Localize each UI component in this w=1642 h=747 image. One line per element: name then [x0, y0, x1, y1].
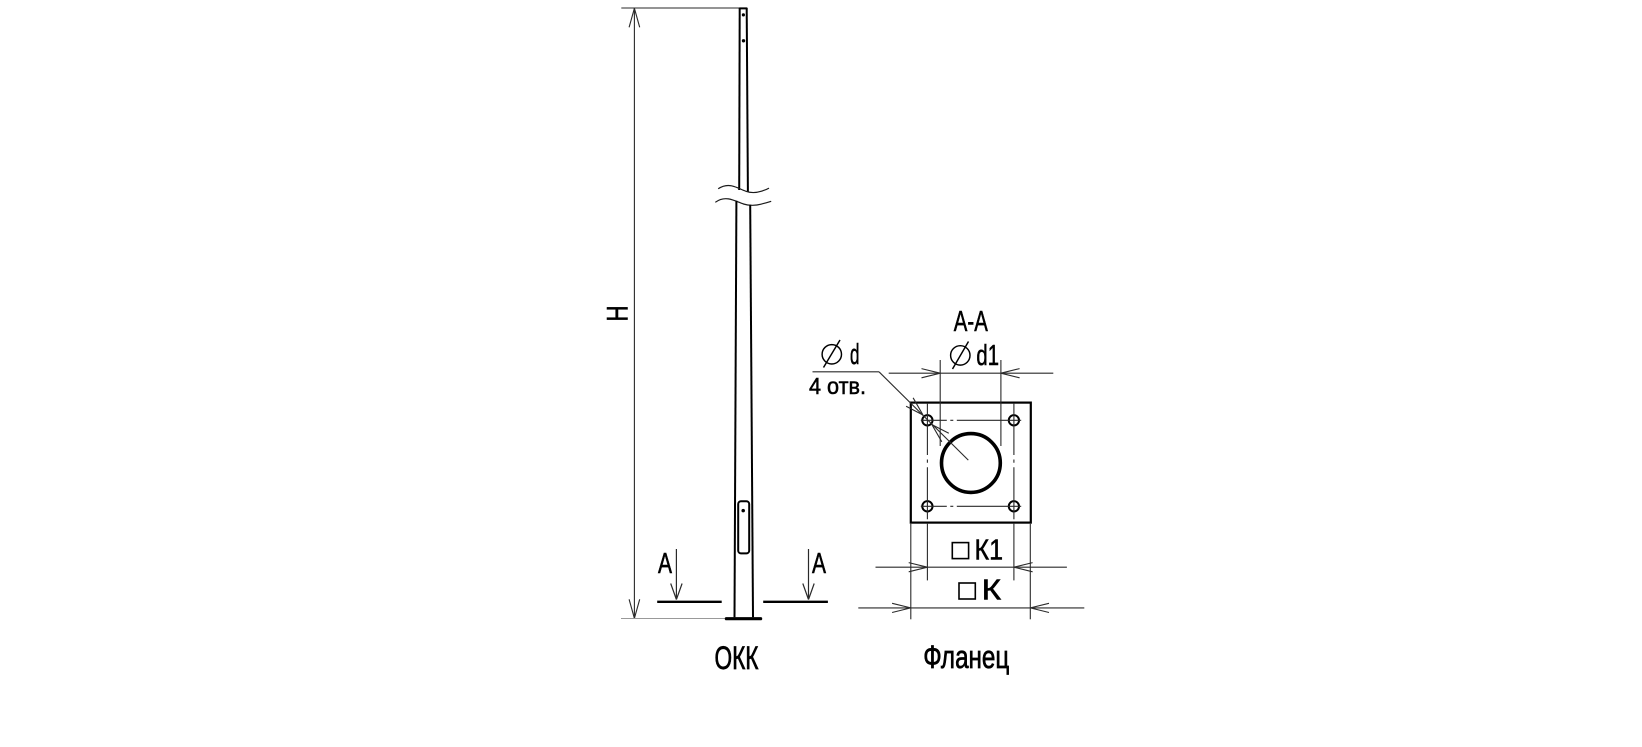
svg-text:А: А [658, 548, 672, 580]
svg-text:К1: К1 [975, 535, 1004, 567]
svg-text:4 отв.: 4 отв. [809, 373, 866, 399]
svg-text:ОКК: ОКК [715, 640, 759, 676]
svg-text:К: К [982, 575, 1002, 607]
svg-text:H: H [601, 306, 634, 322]
svg-text:Фланец: Фланец [923, 639, 1009, 675]
svg-text:А-А: А-А [954, 306, 988, 338]
svg-text:А: А [812, 548, 826, 580]
svg-text:d1: d1 [976, 340, 999, 372]
svg-text:d: d [850, 339, 860, 371]
